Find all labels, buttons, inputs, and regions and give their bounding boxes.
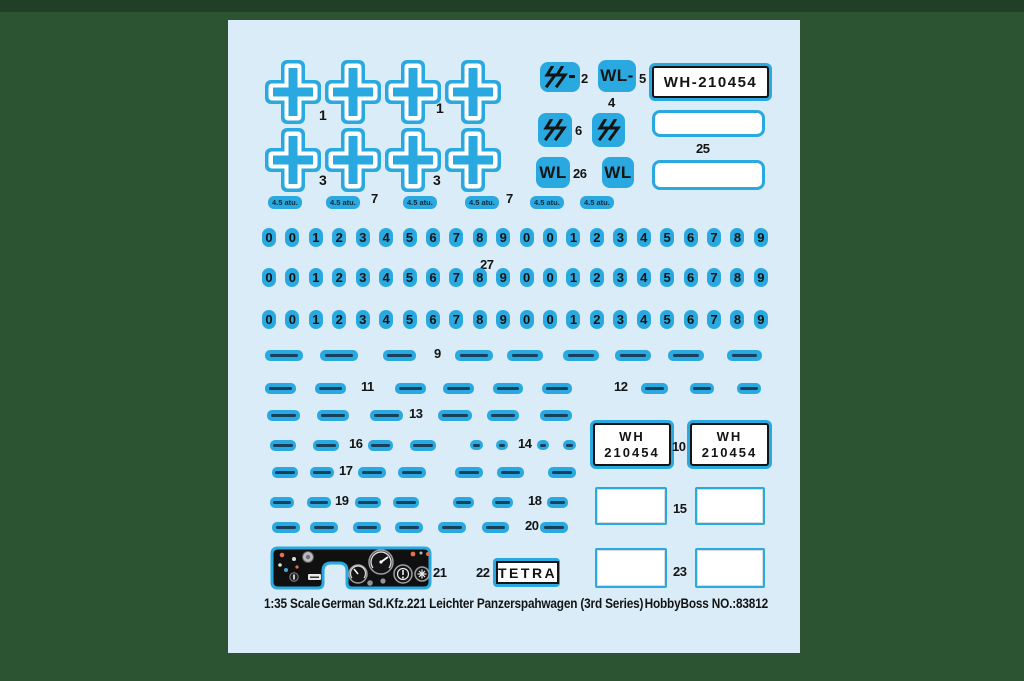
micro-label-pill [270,440,296,451]
footer-brand: HobbyBoss NO.:83812 [645,596,768,611]
digit-pill: 1 [566,310,580,329]
digit-pill: 9 [754,310,768,329]
digit-pill: 7 [707,228,721,247]
digit-pill: 5 [660,310,674,329]
micro-label-pill [265,350,303,361]
micro-label-pill [310,467,334,478]
row-number-label: 11 [361,380,374,393]
digit-row: 0012345678900123456789 [262,310,768,329]
digit-pill: 7 [449,310,463,329]
balkenkreuz-cross-graphic [445,60,501,124]
digit-pill: 3 [356,310,370,329]
micro-label-pill [370,410,403,421]
digit-pill: 1 [309,268,323,287]
micro-label-pill [313,440,339,451]
balkenkreuz-cross-decal [445,60,501,124]
digit-pill: 8 [730,310,744,329]
number-label: 15 [673,502,686,515]
digit-pill: 0 [543,228,557,247]
balkenkreuz-cross-graphic [445,128,501,192]
cross-number-label: 1 [319,108,326,122]
digit-pill: 2 [590,310,604,329]
balkenkreuz-cross-decal [325,60,381,124]
balkenkreuz-cross-decal [385,60,441,124]
digit-pill: 0 [520,228,534,247]
row-number-label: 20 [525,519,538,532]
plate-line-wh: WH [717,429,743,445]
cross-number-label: 3 [319,173,326,187]
digit-pill: 5 [403,268,417,287]
digit-pill: 3 [356,228,370,247]
digit-pill: 8 [730,228,744,247]
row-number-label: 16 [349,437,362,450]
digit-pill: 0 [262,268,276,287]
ss-runes-badge [538,113,572,147]
digit-pill: 7 [449,228,463,247]
digit-pill: 0 [520,268,534,287]
micro-label-pill [455,350,493,361]
plate-line-number: 210454 [702,445,757,461]
micro-label-pill [267,410,300,421]
digit-pill: 0 [285,228,299,247]
micro-label-pill [492,497,513,508]
license-plate-wh-210454: WH-210454 [652,66,769,98]
digit-pill: 9 [496,228,510,247]
micro-label-pill [641,383,668,394]
micro-label-pill [540,410,572,421]
blank-license-plate [652,110,765,137]
digit-pill: 8 [730,268,744,287]
micro-label-pill [727,350,762,361]
page-background: 1 1 3 3 4.5 atu.4.5 atu.4.5 atu.4.5 atu.… [0,0,1024,681]
blank-license-plate [652,160,765,190]
digit-pill: 3 [613,268,627,287]
digit-pill: 4 [637,268,651,287]
digit-pill: 6 [426,310,440,329]
digit-pill: 6 [684,268,698,287]
micro-label-pill [307,497,331,508]
micro-label-pill [438,522,466,533]
number-label: 25 [696,142,709,155]
tetra-plate: TETRA [493,558,560,587]
ss-runes-badge [592,113,625,147]
balkenkreuz-cross-decal [265,128,321,192]
micro-label-pill [563,440,576,450]
digit-pill: 1 [566,268,580,287]
digit-pill: 7 [449,268,463,287]
balkenkreuz-cross-graphic [325,128,381,192]
micro-label-pill [270,497,294,508]
micro-label-pill [410,440,436,451]
micro-label-pill [320,350,358,361]
digit-pill: 8 [473,268,487,287]
digit-pill: 4 [379,310,393,329]
digit-pill: 9 [496,268,510,287]
digit-pill: 7 [707,268,721,287]
digit-pill: 4 [637,310,651,329]
digit-pill: 2 [332,268,346,287]
digit-pill: 0 [543,310,557,329]
number-label: 5 [639,72,646,85]
atu-label-pill: 4.5 atu. [326,196,360,209]
micro-label-pill [358,467,386,478]
atu-number-label: 7 [371,192,378,205]
atu-label-pill: 4.5 atu. [580,196,614,209]
micro-label-pill [487,410,519,421]
micro-label-pill [393,497,419,508]
digit-pill: 5 [403,228,417,247]
micro-label-pill [507,350,543,361]
balkenkreuz-cross-graphic [265,128,321,192]
ss-runes-icon [597,119,621,141]
digit-pill: 9 [754,228,768,247]
atu-label-pill: 4.5 atu. [530,196,564,209]
row-number-label: 9 [434,347,441,360]
cross-number-label: 1 [436,101,443,115]
digit-pill: 9 [496,310,510,329]
cross-number-label: 3 [433,173,440,187]
digit-pill: 2 [590,228,604,247]
micro-label-pill [537,440,549,450]
digit-pill: 3 [613,310,627,329]
blank-plate [695,548,765,588]
wl-dash-badge: WL- [598,60,636,92]
balkenkreuz-cross-decal [325,128,381,192]
digit-pill: 6 [426,268,440,287]
micro-label-pill [272,522,300,533]
number-label: 10 [672,440,685,453]
digit-pill: 0 [262,228,276,247]
indicator-light-icon [280,553,285,558]
balkenkreuz-cross-decal [445,128,501,192]
plate-line-wh: WH [619,429,645,445]
digit-pill: 8 [473,310,487,329]
digit-pill: 0 [285,310,299,329]
digit-pill: 6 [684,228,698,247]
digit-pill: 3 [613,228,627,247]
micro-label-pill [470,440,483,450]
micro-label-pill [542,383,572,394]
digit-pill: 4 [637,228,651,247]
balkenkreuz-cross-decal [265,60,321,124]
digit-pill: 7 [707,310,721,329]
micro-label-pill [353,522,381,533]
micro-label-pill [496,440,508,450]
row-number-label: 12 [614,380,627,393]
micro-label-pill [355,497,381,508]
digit-pill: 3 [356,268,370,287]
footer-scale: 1:35 Scale [264,596,320,611]
digit-pill: 9 [754,268,768,287]
digit-pill: 0 [520,310,534,329]
atu-label-pill: 4.5 atu. [403,196,437,209]
footer-caption: 1:35 Scale German Sd.Kfz.221 Leichter Pa… [264,596,768,611]
digit-pill: 1 [566,228,580,247]
wl-badge: WL [536,157,570,188]
digit-pill: 1 [309,310,323,329]
row-number-label: 14 [518,437,531,450]
blank-plate [695,487,765,525]
number-label: 21 [433,566,446,579]
digit-pill: 8 [473,228,487,247]
wl-badge: WL [602,157,634,188]
micro-label-pill [272,467,298,478]
micro-label-pill [315,383,346,394]
digit-pill: 0 [262,310,276,329]
atu-label-pill: 4.5 atu. [268,196,302,209]
atu-label-pill: 4.5 atu. [465,196,499,209]
tetra-label: TETRA [496,561,559,584]
cross-row-2 [265,128,501,192]
digit-pill: 5 [660,268,674,287]
micro-label-pill [563,350,599,361]
instrument-panel-decal [270,546,432,590]
micro-label-pill [317,410,349,421]
micro-label-pill [383,350,416,361]
digit-pill: 5 [403,310,417,329]
balkenkreuz-cross-graphic [385,60,441,124]
digit-pill: 1 [309,228,323,247]
digit-pill: 4 [379,228,393,247]
row-number-label: 19 [335,494,348,507]
micro-label-pill [453,497,474,508]
atu-number-label: 7 [506,192,513,205]
ss-runes-icon [543,119,567,141]
number-label: 26 [573,167,586,180]
micro-label-pill [482,522,509,533]
micro-label-pill [438,410,472,421]
micro-label-pill [547,497,568,508]
footer-title: German Sd.Kfz.221 Leichter Panzerspahwag… [321,596,643,611]
ss-runes-dash-icon [543,66,577,88]
plate-line-number: 210454 [604,445,659,461]
decal-sheet: 1 1 3 3 4.5 atu.4.5 atu.4.5 atu.4.5 atu.… [228,20,800,653]
row-number-label: 18 [528,494,541,507]
micro-label-pill [668,350,704,361]
digit-pill: 2 [590,268,604,287]
micro-label-pill [395,522,423,533]
digit-pill: 6 [426,228,440,247]
micro-label-pill [265,383,296,394]
number-label: 4 [608,96,615,109]
balkenkreuz-cross-graphic [325,60,381,124]
row-number-label: 13 [409,407,422,420]
micro-label-pill [615,350,651,361]
digit-pill: 0 [543,268,557,287]
digit-pill: 0 [285,268,299,287]
digit-row: 0012345678900123456789 [262,228,768,247]
digit-pill: 4 [379,268,393,287]
ss-runes-dash-badge [540,62,580,92]
digit-row: 0012345678900123456789 [262,268,768,287]
cross-row-1 [265,60,501,124]
micro-label-pill [493,383,523,394]
number-label: 22 [476,566,489,579]
micro-label-pill [395,383,426,394]
number-label: 23 [673,565,686,578]
blank-plate [595,487,667,525]
blank-plate [595,548,667,588]
micro-label-pill [368,440,393,451]
micro-label-pill [548,467,576,478]
micro-label-pill [497,467,524,478]
row-number-label: 17 [339,464,352,477]
balkenkreuz-cross-graphic [265,60,321,124]
wh-210454-two-line-plate: WH 210454 [593,423,671,466]
micro-label-pill [443,383,474,394]
micro-label-pill [455,467,483,478]
micro-label-pill [737,383,761,394]
digit-pill: 2 [332,310,346,329]
wh-210454-two-line-plate: WH 210454 [690,423,769,466]
number-label: 2 [581,72,588,85]
digit-pill: 5 [660,228,674,247]
digit-pill: 2 [332,228,346,247]
digit-pill: 6 [684,310,698,329]
micro-label-pill [398,467,426,478]
micro-label-pill [690,383,714,394]
micro-label-pill [540,522,568,533]
number-label: 6 [575,124,582,137]
micro-label-pill [310,522,338,533]
